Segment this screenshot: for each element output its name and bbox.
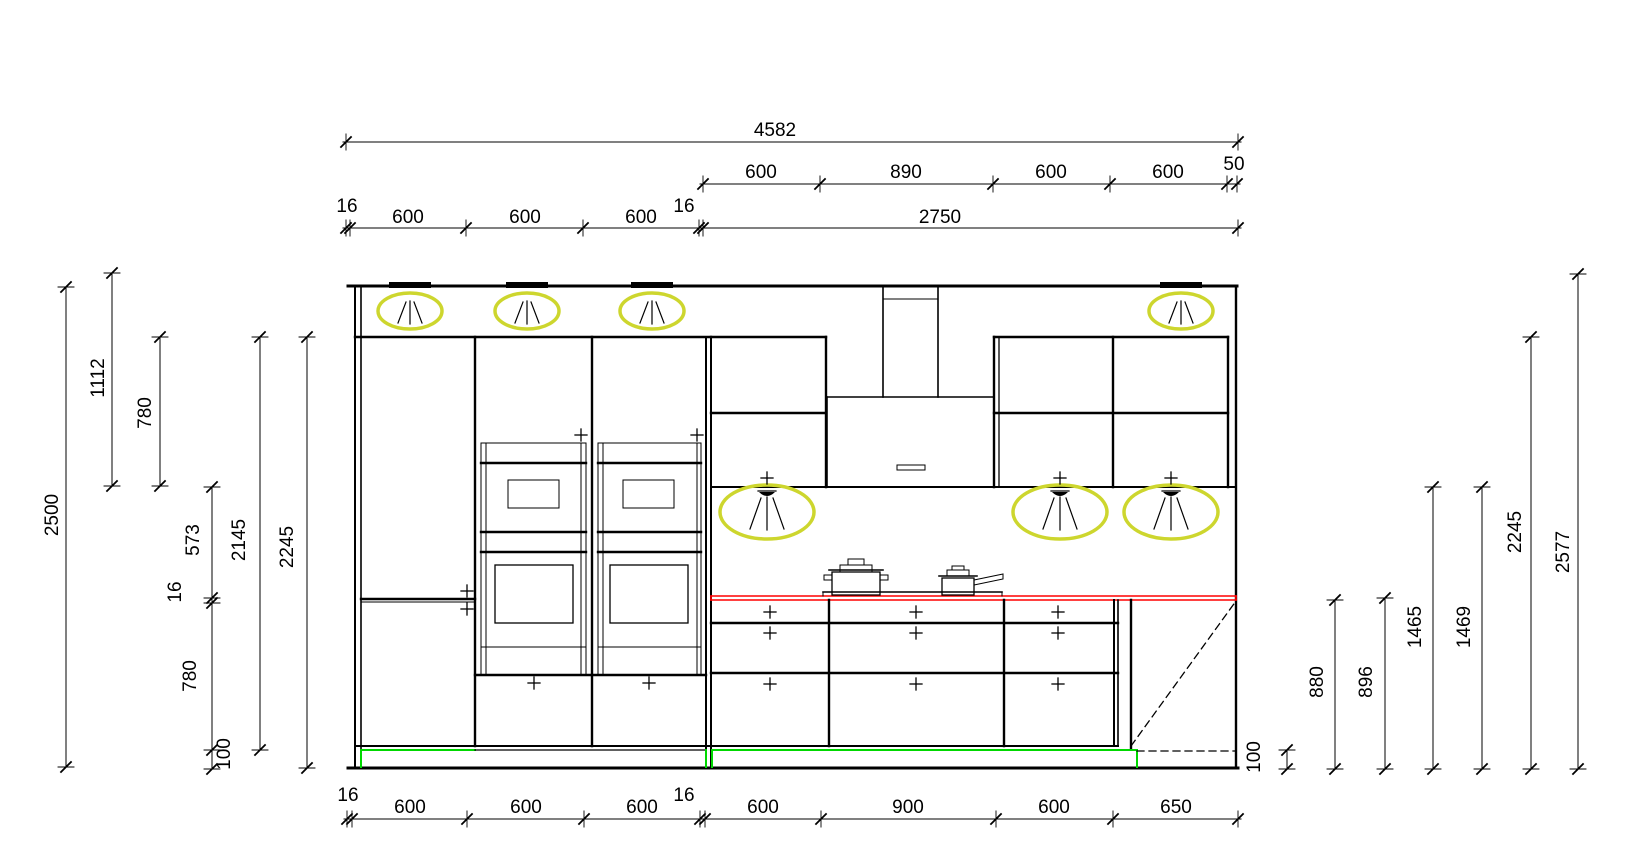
compact-oven-window (623, 480, 674, 508)
dim-label: 600 (1035, 162, 1067, 183)
oven-column-right (592, 429, 706, 689)
saucepan-icon (939, 566, 1003, 595)
dim-label: 780 (135, 397, 156, 429)
dim-label: 2750 (919, 207, 961, 228)
dim-label: 900 (892, 797, 924, 818)
door-handle-plus-icon (461, 585, 473, 597)
dim-label: 100 (1244, 741, 1265, 773)
cooking-pot-icon (824, 559, 888, 595)
kitchen-elevation: 4582 600 890 600 600 50 16 600 600 600 1… (0, 0, 1630, 844)
base-cabinets (711, 600, 1131, 748)
oven-window (495, 565, 573, 623)
appliance-void (1131, 601, 1236, 751)
lighting (378, 282, 1218, 539)
dim-label: 600 (1152, 162, 1184, 183)
dim-label: 600 (625, 207, 657, 228)
ceiling-light-icon (1149, 282, 1213, 329)
dim-label: 880 (1307, 666, 1328, 698)
under-cabinet-light-icon (720, 485, 814, 539)
dim-label: 600 (392, 207, 424, 228)
hood-vent-slot (897, 465, 925, 470)
dim-label: 2245 (1505, 511, 1526, 553)
dim-label: 600 (394, 797, 426, 818)
dim-label: 1465 (1405, 606, 1426, 648)
dim-label-total: 4582 (754, 120, 796, 141)
dim-label: 600 (747, 797, 779, 818)
dim-label: 2245 (277, 526, 298, 568)
extractor-hood (827, 286, 994, 487)
dim-label: 896 (1356, 666, 1377, 698)
dim-label: 600 (509, 207, 541, 228)
dim-label: 600 (745, 162, 777, 183)
dim-label: 650 (1160, 797, 1192, 818)
dim-label: 16 (673, 196, 694, 217)
dim-label: 16 (673, 785, 694, 806)
dimension-lines (58, 134, 1586, 827)
under-cabinet-light-icon (1013, 485, 1107, 539)
under-cabinet-light-icon (1124, 485, 1218, 539)
compact-oven-window (508, 480, 559, 508)
drawer-handle-plus-icon (643, 677, 655, 689)
dim-label: 1469 (1454, 606, 1475, 648)
dim-label: 573 (183, 524, 204, 556)
dimension-labels: 4582 600 890 600 600 50 16 600 600 600 1… (42, 120, 1574, 818)
ceiling-light-icon (620, 282, 684, 329)
dim-label: 16 (165, 581, 186, 602)
dim-label: 780 (180, 660, 201, 692)
dim-label: 600 (1038, 797, 1070, 818)
dim-label: 100 (214, 738, 235, 770)
oven-column-left (475, 429, 592, 689)
ceiling-light-icon (378, 282, 442, 329)
dim-label: 16 (336, 196, 357, 217)
dim-label: 890 (890, 162, 922, 183)
drawing-canvas: 4582 600 890 600 600 50 16 600 600 600 1… (0, 0, 1630, 844)
door-handle-plus-icon (575, 429, 587, 441)
dim-label: 600 (626, 797, 658, 818)
dim-label: 2145 (229, 519, 250, 561)
dim-label: 1112 (88, 358, 109, 397)
door-handle-plus-icon (691, 429, 703, 441)
dim-label: 16 (337, 785, 358, 806)
dim-label: 2577 (1553, 531, 1574, 573)
dim-label: 600 (510, 797, 542, 818)
dim-label: 2500 (42, 494, 63, 536)
ceiling-light-icon (495, 282, 559, 329)
dim-label: 50 (1223, 154, 1244, 175)
wall-cabinets (711, 337, 1236, 487)
door-handle-plus-icon (461, 603, 473, 615)
oven-window (610, 565, 688, 623)
drawer-handle-plus-icon (528, 677, 540, 689)
plinth-highlight (361, 750, 1137, 767)
